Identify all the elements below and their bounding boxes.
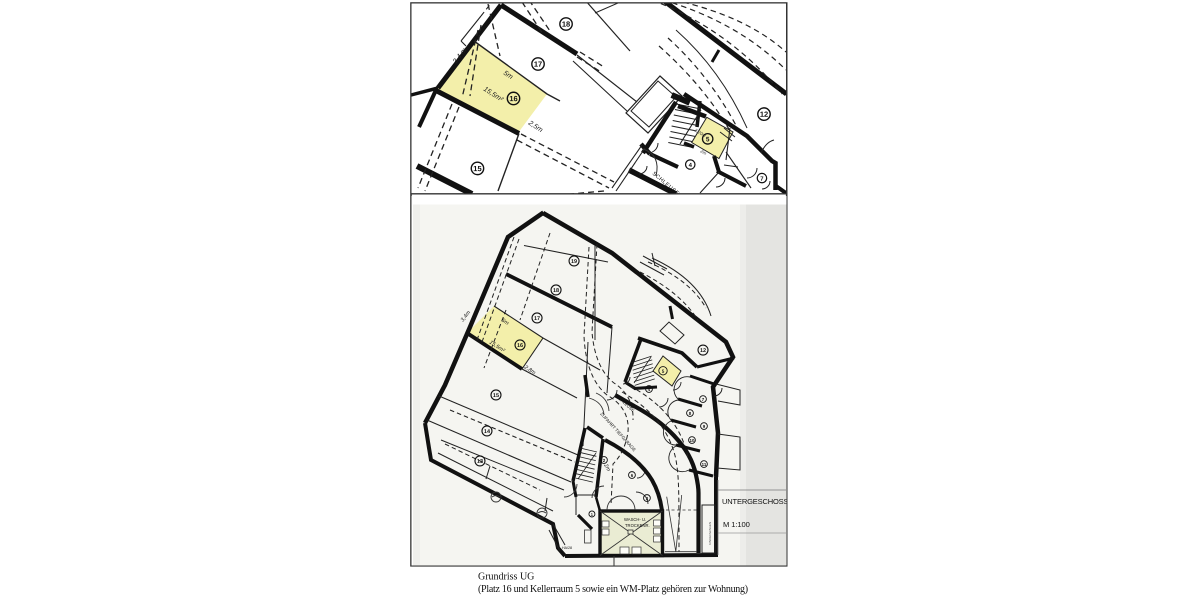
svg-text:UNTERGESCHOSS: UNTERGESCHOSS: [722, 497, 789, 506]
svg-text:11: 11: [702, 462, 707, 467]
svg-text:16: 16: [517, 343, 523, 349]
svg-text:5: 5: [706, 136, 710, 143]
svg-text:5: 5: [662, 369, 665, 374]
svg-text:19: 19: [571, 259, 577, 265]
svg-text:18: 18: [553, 288, 559, 294]
svg-text:13: 13: [477, 459, 483, 465]
svg-text:15: 15: [493, 393, 499, 399]
svg-text:12: 12: [700, 348, 706, 354]
svg-text:17: 17: [534, 60, 542, 69]
svg-text:(Platz 16 und Kellerraum 5 sow: (Platz 16 und Kellerraum 5 sowie ein WM-…: [478, 584, 748, 595]
svg-text:12: 12: [760, 110, 768, 119]
svg-text:15: 15: [473, 164, 481, 173]
svg-text:18: 18: [562, 20, 570, 29]
svg-text:WASCH- U.: WASCH- U.: [624, 517, 646, 522]
svg-text:16: 16: [509, 94, 517, 103]
svg-text:14: 14: [484, 429, 491, 435]
svg-text:Grundriss UG: Grundriss UG: [478, 572, 534, 583]
svg-text:KINDERWAGEN: KINDERWAGEN: [708, 522, 712, 545]
svg-text:10: 10: [690, 438, 695, 443]
svg-text:TROCKENR.: TROCKENR.: [625, 523, 650, 528]
svg-text:HA/28: HA/28: [562, 546, 572, 550]
svg-text:M 1:100: M 1:100: [723, 520, 750, 529]
svg-text:17: 17: [534, 316, 540, 322]
